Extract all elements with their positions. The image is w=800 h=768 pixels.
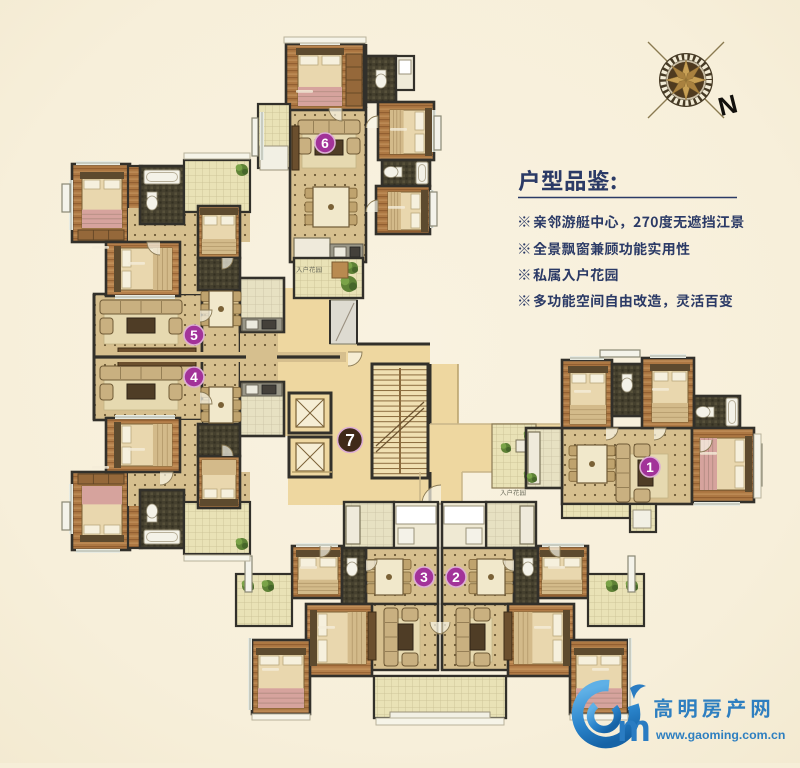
svg-text:m: m: [617, 708, 651, 750]
svg-text:3: 3: [420, 570, 428, 585]
svg-text:4: 4: [190, 370, 198, 385]
svg-text:6: 6: [321, 136, 329, 151]
svg-text:www.gaoming.com.cn: www.gaoming.com.cn: [655, 728, 785, 742]
svg-text:2: 2: [452, 570, 460, 585]
svg-text:1: 1: [646, 460, 654, 475]
svg-text:7: 7: [345, 430, 355, 450]
svg-text:5: 5: [190, 328, 198, 343]
